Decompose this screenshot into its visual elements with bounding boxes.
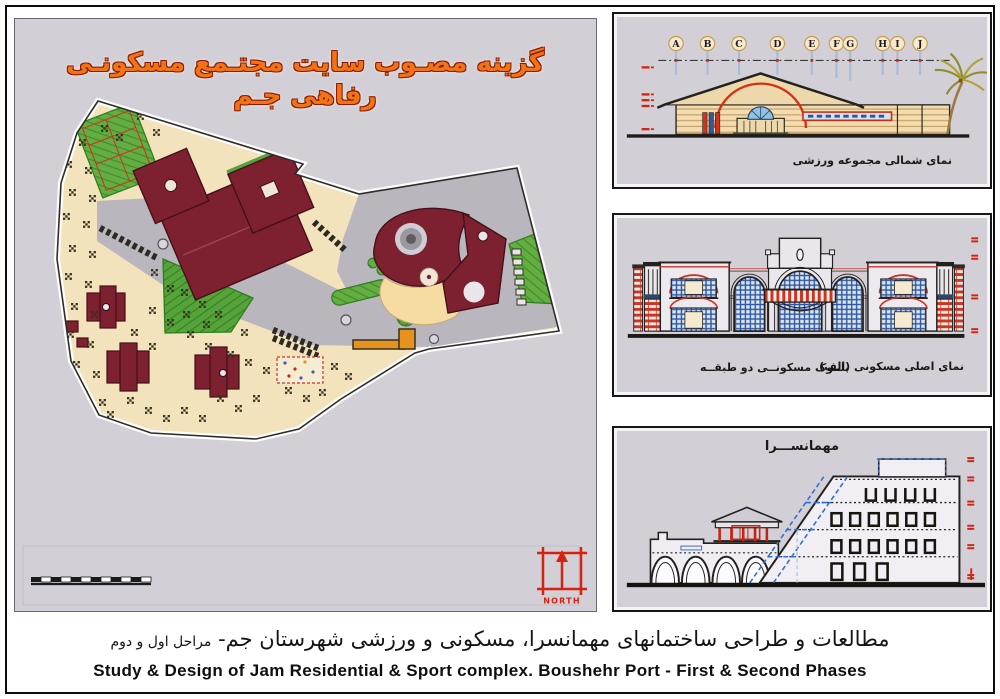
grid-letter: G (846, 39, 854, 50)
grid-letter: A (671, 39, 680, 50)
scale-bar (31, 577, 151, 584)
guesthouse-elevation-drawing (617, 431, 987, 607)
footer-persian: مطالعات و طراحی ساختمانهای مهمانسرا، مسک… (0, 627, 1000, 651)
building-elevation (627, 73, 969, 137)
left-wing (632, 262, 767, 331)
grid-letter: B (704, 39, 712, 50)
footer-persian-phases: مراحل اول و دوم (110, 634, 211, 650)
ground-line (628, 334, 965, 338)
grid-letter: F (833, 39, 840, 50)
level-markers (971, 237, 978, 333)
footer-english: Study & Design of Jam Residential & Spor… (0, 661, 960, 681)
title-strip (23, 546, 579, 605)
roof-pavilion (711, 507, 782, 541)
residential-caption-left: بلــوک مسکونــی دو طبقــه (700, 361, 849, 374)
sports-elevation-panel: A B C D E F G H I J (612, 12, 992, 189)
playground (277, 357, 323, 383)
grid-bubbles: A B C D E F G H I J (669, 36, 927, 80)
grid-letter: I (895, 39, 899, 50)
residential-elevation-panel: نمای اصلی مسکونی (الف) بلــوک مسکونــی د… (612, 213, 992, 397)
footer-persian-main: مطالعات و طراحی ساختمانهای مهمانسرا، مسک… (218, 627, 889, 651)
guesthouse-title: مهمانســـرا (614, 439, 990, 454)
north-label: NORTH (543, 597, 580, 606)
central-entrance (763, 238, 838, 331)
sports-elevation-caption: نمای شمالی مجموعه ورزشی (793, 154, 952, 167)
stepped-block (760, 459, 960, 583)
grid-letter: D (773, 39, 781, 50)
presentation-board: NORTH گزینه مصـوب سایت مجتـمع مسکونـی رف… (0, 0, 1000, 699)
ground-line (627, 583, 985, 587)
guesthouse-elevation-panel: مهمانســـرا (612, 426, 992, 612)
grid-letter: J (917, 39, 923, 50)
grid-letter: E (808, 39, 815, 50)
level-markers (642, 66, 654, 130)
site-plan-panel: NORTH گزینه مصـوب سایت مجتـمع مسکونـی رف… (14, 18, 597, 612)
ground-line (627, 134, 969, 137)
right-wing (830, 262, 965, 331)
grid-letter: H (878, 39, 887, 50)
balcony (765, 290, 836, 303)
level-markers (967, 457, 974, 580)
grid-letter: C (735, 39, 742, 50)
site-plan-title: گزینه مصـوب سایت مجتـمع مسکونـی رفاهی جـ… (55, 47, 555, 112)
